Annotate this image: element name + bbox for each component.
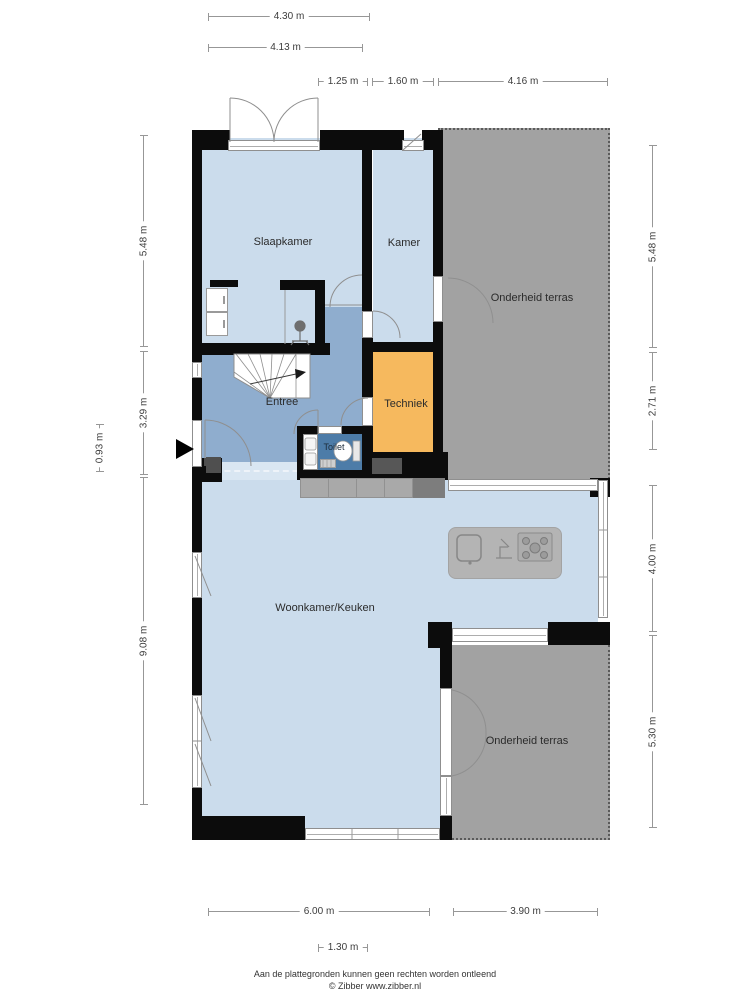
door-swing-arc [448,278,493,323]
label-kamer: Kamer [388,237,420,249]
dimension-label: 4.00 m [648,539,659,578]
dimension-left-3: 0.93 m [99,424,100,472]
faucet-icon [496,539,512,558]
dimension-label: 3.29 m [139,394,150,433]
dimension-right-4: 5.30 m [652,635,653,828]
label-slaapkamer: Slaapkamer [254,236,313,248]
dimension-label: 0.93 m [95,429,106,468]
label-terras-bottom: Onderheid terras [486,735,569,747]
dimension-top-3: 1.25 m [318,81,368,82]
window-open-diagonal [195,556,211,596]
plan-linework [0,0,750,1000]
label-woonkamer: Woonkamer/Keuken [275,602,374,614]
dimension-top-5: 4.16 m [438,81,608,82]
dimension-right-1: 5.48 m [652,145,653,348]
door-swing-arc [452,690,486,733]
dimension-label: 3.90 m [506,906,545,917]
door-swing-arc [373,311,400,338]
washbasin-icon [305,438,316,465]
dimension-bottom-1: 6.00 m [208,911,430,912]
footer-disclaimer: Aan de plattegronden kunnen geen rechten… [0,969,750,979]
dimension-label: 9.08 m [139,622,150,661]
label-techniek: Techniek [384,398,427,410]
label-toilet: Toilet [323,442,344,452]
dimension-label: 4.30 m [270,11,309,22]
door-swing-arc [341,398,368,425]
footer-credit: © Zibber www.zibber.nl [0,981,750,991]
door-swing-arc [452,733,486,776]
door-swing-arc [205,420,251,466]
entrance-arrow-icon [176,439,194,459]
window-tick [598,530,608,577]
dimension-label: 1.25 m [324,76,363,87]
dimension-top-4: 1.60 m [372,81,434,82]
door-open-diagonal [403,134,421,150]
dimension-left-4: 9.08 m [143,477,144,805]
dimension-label: 5.30 m [648,712,659,751]
window-open-diagonal [195,698,211,741]
dimension-bottom-2: 3.90 m [453,911,598,912]
dimension-label: 1.60 m [384,76,423,87]
dimension-top-1: 4.30 m [208,16,370,17]
dimension-left-1: 5.48 m [143,135,144,347]
dimension-label: 6.00 m [300,906,339,917]
floorplan: Slaapkamer Kamer Onderheid terras Entree… [0,0,750,1000]
shower-icon [291,321,309,345]
window-tick [352,829,398,839]
dimension-bottom-3: 1.30 m [318,947,368,948]
door-swing-arc [230,98,274,142]
label-entree: Entree [266,396,298,408]
window-open-diagonal [195,744,211,786]
dimension-label: 5.48 m [648,227,659,266]
door-swing-arc [274,98,318,142]
stairs-icon [234,354,310,398]
dimension-top-2: 4.13 m [208,47,363,48]
dimension-label: 5.48 m [139,222,150,261]
radiator-stripes [323,460,331,467]
label-terras-top: Onderheid terras [491,292,574,304]
door-swing-arc [294,410,318,434]
sink-icon [457,535,481,565]
door-swing-arc [330,275,362,307]
dimension-label: 4.16 m [504,76,543,87]
dimension-right-3: 4.00 m [652,485,653,632]
dimension-left-2: 3.29 m [143,351,144,475]
cooktop-icon [518,533,552,561]
dimension-label: 1.30 m [324,942,363,953]
dimension-right-2: 2.71 m [652,352,653,450]
dimension-label: 2.71 m [648,382,659,421]
dimension-label: 4.13 m [266,42,305,53]
